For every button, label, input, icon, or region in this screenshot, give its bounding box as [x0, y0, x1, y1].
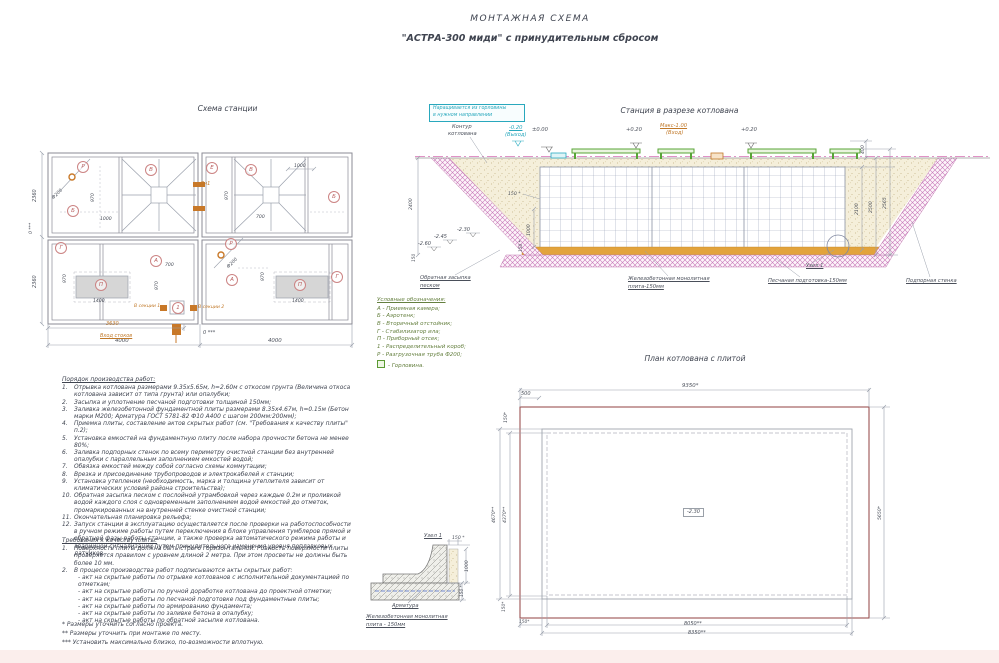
work-order-block: Порядок производства работ: 1.Отрывка ко… [62, 377, 354, 558]
item-number: 3. [62, 407, 74, 421]
compartment-label: Г [331, 271, 343, 283]
procedure-item: 2.В процессе производства работ подписыв… [62, 568, 354, 575]
compartment-label: Р [77, 161, 89, 173]
legend-item: П - Приборный отсек; [377, 336, 466, 344]
item-number: 1. [62, 385, 74, 399]
item-number: 1. [62, 546, 74, 568]
legend-item: Г - Стабилизатор ила; [377, 329, 466, 337]
compartment-label: А [150, 255, 162, 267]
quality-items: 1.Поверхность плиты должна быть строго г… [62, 546, 354, 625]
legend-item: А - Приемная камера; [377, 306, 466, 314]
legend: Условные обозначения: А - Приемная камер… [377, 297, 466, 370]
compartment-label: Б [67, 205, 79, 217]
procedure-item: 6.Заливка подпорных стенок по всему пери… [62, 450, 354, 464]
item-text: Заливка железобетонной фундаментной плит… [74, 407, 354, 421]
work-order-items: 1.Отрывка котлована размерами 9.35х5.65м… [62, 385, 354, 558]
procedure-item: 3.Заливка железобетонной фундаментной пл… [62, 407, 354, 421]
procedure-item: 10.Обратная засыпка песком с послойной у… [62, 493, 354, 515]
procedure-item: 9.Установка утепления (необходимость, ма… [62, 479, 354, 493]
hidden-works-act: - акт на скрытые работы по отрывке котло… [62, 575, 354, 589]
hidden-works-act: - акт на скрытые работы по армированию ф… [62, 604, 354, 611]
footnote: *** Установить максимально близко, по-во… [62, 639, 362, 648]
item-text: Обвязка емкостей между собой согласно сх… [74, 464, 354, 471]
compartment-label: П [95, 279, 107, 291]
item-number: 7. [62, 464, 74, 471]
work-order-title: Порядок производства работ: [62, 377, 354, 384]
compartment-label: 1 [172, 302, 184, 314]
item-number: 11. [62, 515, 74, 522]
item-text: Установка утепления (необходимость, марк… [74, 479, 354, 493]
quality-block: Требования к качеству плиты: 1.Поверхнос… [62, 538, 354, 625]
footnote: ** Размеры уточнить при монтаже по месту… [62, 630, 362, 639]
item-number: 9. [62, 479, 74, 493]
item-number: 4. [62, 421, 74, 435]
compartment-label: П [294, 279, 306, 291]
procedure-item: 1.Отрывка котлована размерами 9.35х5.65м… [62, 385, 354, 399]
item-number: 6. [62, 450, 74, 464]
item-text: Приемка плиты, составление актов скрытых… [74, 421, 354, 435]
drawing-sheet: МОНТАЖНАЯ СХЕМА "АСТРА-300 миди" с прину… [0, 0, 999, 663]
item-number: 8. [62, 472, 74, 479]
hidden-works-act: - акт на скрытые работы по ручной дорабо… [62, 589, 354, 596]
item-number: 2. [62, 568, 74, 575]
item-text: Заливка подпорных стенок по всему периме… [74, 450, 354, 464]
compartment-label: А [226, 274, 238, 286]
procedure-item: 7.Обвязка емкостей между собой согласно … [62, 464, 354, 471]
procedure-item: 1.Поверхность плиты должна быть строго г… [62, 546, 354, 568]
hidden-works-act: - акт на скрытые работы по песчаной подг… [62, 597, 354, 604]
procedure-item: 4.Приемка плиты, составление актов скрыт… [62, 421, 354, 435]
legend-item: Р - Разгрузочная труба Ф200; [377, 352, 466, 360]
item-text: Обратная засыпка песком с послойной утра… [74, 493, 354, 515]
compartment-label: Б [328, 191, 340, 203]
item-text: Врезка и присоединение трубопроводов и э… [74, 472, 354, 479]
hidden-works-act: - акт на скрытые работы по заливке бетон… [62, 611, 354, 618]
procedure-item: 2.Засыпка и уплотнение песчаной подготов… [62, 400, 354, 407]
item-number: 10. [62, 493, 74, 515]
footnote: * Размеры уточнить согласно проекта. [62, 621, 362, 630]
item-text: В процессе производства работ подписываю… [74, 568, 354, 575]
footer-strip [0, 650, 999, 663]
procedure-item: 11.Окончательная планировка рельефа; [62, 515, 354, 522]
legend-item: В - Вторичный отстойник; [377, 321, 466, 329]
compartment-label: Р [225, 238, 237, 250]
compartment-label: Г [55, 242, 67, 254]
item-number: 2. [62, 400, 74, 407]
item-text: Засыпка и уплотнение песчаной подготовки… [74, 400, 354, 407]
procedure-item: 8.Врезка и присоединение трубопроводов и… [62, 472, 354, 479]
item-text: Поверхность плиты должна быть строго гор… [74, 546, 354, 568]
compartment-label: Е [206, 162, 218, 174]
legend-item: 1 - Распределительный короб; [377, 344, 466, 352]
legend-items: А - Приемная камера;Б - Аэротенк;В - Вто… [377, 306, 466, 371]
procedure-item: 5.Установка емкостей на фундаментную пли… [62, 436, 354, 450]
item-text: Отрывка котлована размерами 9.35х5.65м, … [74, 385, 354, 399]
legend-item-neck: - Горловина. [377, 360, 466, 371]
item-text: Окончательная планировка рельефа; [74, 515, 354, 522]
compartment-label: В [245, 164, 257, 176]
legend-item: Б - Аэротенк; [377, 313, 466, 321]
quality-title: Требования к качеству плиты: [62, 538, 354, 545]
legend-title: Условные обозначения: [377, 297, 466, 305]
item-text: Установка емкостей на фундаментную плиту… [74, 436, 354, 450]
neck-icon [377, 360, 385, 368]
item-number: 5. [62, 436, 74, 450]
footnotes: * Размеры уточнить согласно проекта.** Р… [62, 621, 362, 648]
compartment-label: В [145, 164, 157, 176]
